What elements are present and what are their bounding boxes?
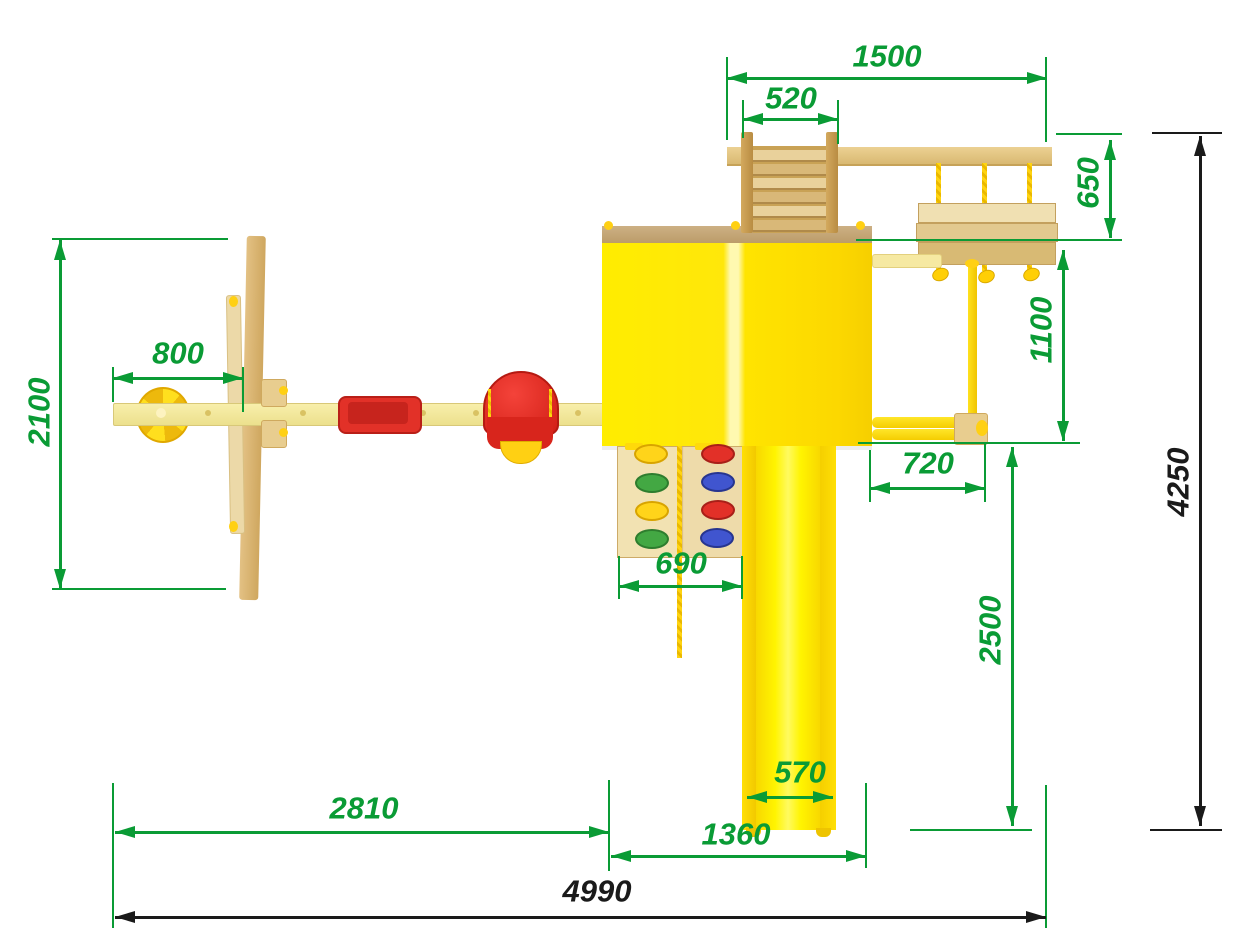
bridge-rope [936, 163, 941, 205]
arrowhead-right [1027, 72, 1047, 84]
dimension-label-4250: 4250 [1163, 448, 1194, 517]
dimension-label-650: 650 [1073, 157, 1104, 209]
arrowhead-down [1057, 421, 1069, 441]
extension-line [856, 239, 1122, 241]
arrowhead-up [1104, 140, 1116, 160]
extension-line [52, 238, 228, 240]
arrowhead-left [115, 826, 135, 838]
arrowhead-up [1057, 250, 1069, 270]
dimension-line [611, 855, 866, 858]
dimension-label-1500: 1500 [853, 41, 922, 72]
beam-hole [473, 410, 479, 416]
extension-line [741, 556, 743, 599]
dimension-label-1100: 1100 [1026, 297, 1057, 364]
pole-cap [965, 259, 979, 268]
ladder-rung [753, 206, 826, 218]
arrowhead-down [1006, 806, 1018, 826]
arrowhead-down [1104, 218, 1116, 238]
arrowhead-right [818, 113, 838, 125]
bridge-rope [982, 163, 987, 205]
dimension-line [1199, 136, 1202, 826]
extension-line [726, 57, 728, 140]
arrowhead-right [223, 372, 243, 384]
hold-red [701, 500, 735, 520]
arrowhead-left [113, 372, 133, 384]
arrowhead-right [846, 850, 866, 862]
rope-hook [976, 267, 996, 285]
dimension-label-4990: 4990 [563, 876, 632, 907]
arrowhead-right [589, 826, 609, 838]
dimension-label-1360: 1360 [702, 819, 771, 850]
arrowhead-left [619, 580, 639, 592]
ladder-rail [741, 132, 753, 233]
dimension-label-520: 520 [765, 83, 817, 114]
arrowhead-up [54, 240, 66, 260]
arrowhead-up [1194, 136, 1206, 156]
arrowhead-left [115, 911, 135, 923]
bridge-rope [1027, 163, 1032, 205]
extension-line [910, 829, 1032, 831]
arrowhead-left [747, 791, 767, 803]
extension-line [112, 783, 114, 928]
dimensional-drawing: 1500520800720690570281013604990210065011… [0, 0, 1239, 931]
dimension-line [59, 240, 62, 589]
arrowhead-right [1026, 911, 1046, 923]
dimension-label-720: 720 [902, 448, 954, 479]
arrowhead-right [965, 482, 985, 494]
dimension-label-2810: 2810 [330, 793, 399, 824]
hold-red [701, 444, 735, 464]
ladder-rung [753, 192, 826, 204]
arrowhead-up [1006, 447, 1018, 467]
slide-left-rail [742, 446, 756, 830]
extension-line [52, 588, 226, 590]
ladder-rung [753, 178, 826, 190]
extension-line [618, 556, 620, 599]
beam-hole [575, 410, 581, 416]
dimension-label-690: 690 [655, 548, 707, 579]
flat-swing-seat-inner [348, 402, 408, 424]
arrowhead-right [722, 580, 742, 592]
rope-hook [930, 265, 950, 283]
rail-cap [976, 420, 988, 436]
dimension-line [1062, 250, 1065, 441]
tower-knob [604, 221, 613, 230]
extension-line [1150, 829, 1222, 831]
arrowhead-left [743, 113, 763, 125]
hold-yellow [634, 444, 668, 464]
dimension-line [115, 831, 609, 834]
arrowhead-left [870, 482, 890, 494]
extension-line [1045, 57, 1047, 142]
dimension-label-2100: 2100 [24, 378, 55, 447]
beam-hole [300, 410, 306, 416]
rope-hook [1021, 265, 1041, 283]
side-rail [872, 254, 942, 268]
frame-clip [229, 521, 238, 532]
arrowhead-left [727, 72, 747, 84]
dimension-label-2500: 2500 [975, 596, 1006, 665]
dimension-label-800: 800 [152, 338, 204, 369]
tower-knob [731, 221, 740, 230]
extension-line [1152, 132, 1222, 134]
baby-swing-seat [483, 371, 559, 463]
extension-line [869, 450, 871, 502]
arrowhead-down [1194, 806, 1206, 826]
baby-swing-bottom [500, 441, 542, 464]
tower-knob [856, 221, 865, 230]
dimension-label-570: 570 [774, 757, 826, 788]
bracket-cap [279, 428, 288, 437]
beam-bolt [156, 408, 166, 418]
hold-green [635, 473, 669, 493]
beam-hole [205, 410, 211, 416]
dimension-line [727, 77, 1047, 80]
ladder-rung [753, 164, 826, 176]
dimension-line [115, 916, 1046, 919]
ladder-rung [753, 150, 826, 162]
slide-foot [816, 828, 831, 837]
arrowhead-left [611, 850, 631, 862]
hold-blue [701, 472, 735, 492]
arrowhead-right [813, 791, 833, 803]
arrowhead-down [54, 569, 66, 589]
extension-line [858, 442, 1080, 444]
rope-bridge-plank [918, 203, 1056, 223]
tower-roof [602, 243, 872, 446]
ladder-rail [826, 132, 838, 233]
ladder-rung [753, 220, 826, 232]
bracket-cap [279, 386, 288, 395]
extension-line [1045, 785, 1047, 928]
extension-line [1056, 133, 1122, 135]
frame-clip [229, 296, 238, 307]
dimension-line [1011, 447, 1014, 826]
hold-yellow [635, 501, 669, 521]
